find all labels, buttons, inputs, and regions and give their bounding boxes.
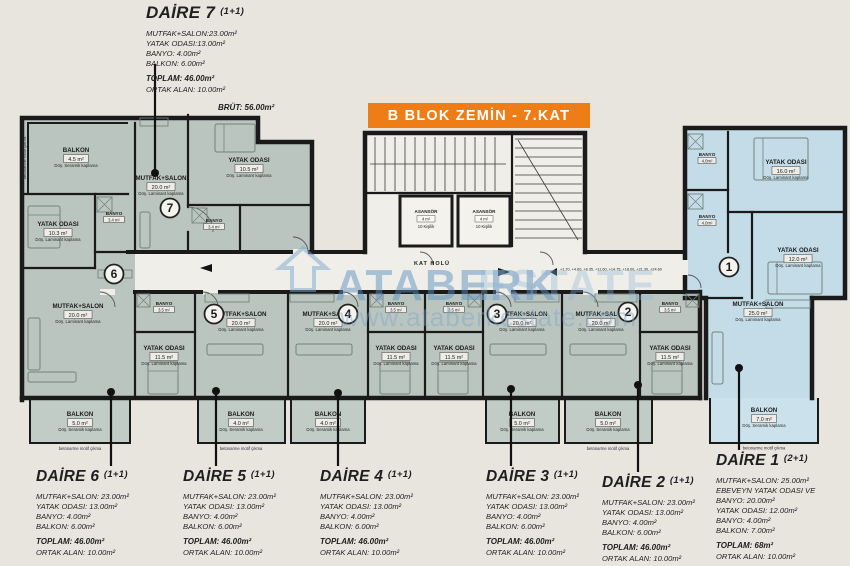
room-label-text: 3.4 m² [108, 217, 120, 222]
room-label-text: MUTFAK+SALON [732, 301, 784, 308]
unit-detail-line: BANYO: 4.00m² [36, 512, 129, 522]
elevator-label: ASANSÖR [473, 208, 497, 214]
unit-details: MUTFAK+SALON:23.00m²YATAK ODASI:13.00m²B… [146, 29, 274, 69]
room-label-text: 3.4 m² [208, 224, 220, 229]
unit-common-area: ORTAK ALAN: 10.00m² [602, 554, 695, 563]
unit-common-area: ORTAK ALAN: 10.00m² [716, 552, 815, 561]
unit-detail-line: BALKON: 6.00m² [486, 522, 579, 532]
unit-name: DAİRE 6 (1+1) [36, 468, 129, 486]
plan-title-banner: B BLOK ZEMİN - 7.KAT [368, 103, 590, 128]
room-label-text: Döş. Seramik kaplama [54, 163, 98, 168]
room-label-text: BALKON [751, 407, 778, 414]
unit-detail-line: YATAK ODASI:13.00m² [146, 39, 274, 49]
room-label-text: Döş. Laminant kaplama [775, 263, 821, 268]
unit-total: TOPLAM: 46.00m² [486, 537, 579, 546]
apartment-number: 6 [111, 267, 118, 281]
room-label-text: Döş. Laminant kaplama [138, 191, 184, 196]
watermark-url: www.ataberkestate.com [339, 302, 637, 332]
unit-label-daire7: DAİRE 7 (1+1) MUTFAK+SALON:23.00m²YATAK … [146, 3, 274, 112]
room-label-text: BANYO [699, 214, 716, 219]
unit-name: DAİRE 1 (2+1) [716, 452, 815, 470]
room-label-text: 16.0 m² [777, 169, 796, 175]
elevator-capacity: 10 Kişilik [418, 224, 435, 229]
room-label-text: BALKON [67, 411, 94, 418]
room-label-text: Döş. Seramik kaplama [500, 427, 544, 432]
unit-label-daire6: DAİRE 6 (1+1) MUTFAK+SALON: 23.00m²YATAK… [36, 468, 129, 557]
room-label-text: BALKON [228, 411, 255, 418]
room-label-text: YATAK ODASI [777, 247, 818, 254]
unit-name: DAİRE 4 (1+1) [320, 468, 413, 486]
unit-details: MUTFAK+SALON: 25.00m²EBEVEYN YATAK ODASI… [716, 476, 815, 536]
unit-detail-line: BALKON: 6.00m² [36, 522, 129, 532]
unit-detail-line: YATAK ODASI: 13.00m² [486, 502, 579, 512]
unit-name: DAİRE 3 (1+1) [486, 468, 579, 486]
room-label-text: Döş. Laminant kaplama [763, 175, 809, 180]
unit-detail-line: EBEVEYN YATAK ODASI VE [716, 486, 815, 496]
room-label-text: 20.0 m² [152, 185, 171, 191]
room-label-text: 20.0 m² [69, 313, 88, 319]
unit-label-daire3: DAİRE 3 (1+1) MUTFAK+SALON: 23.00m²YATAK… [486, 468, 579, 557]
room-label-text: 11.5 m² [387, 355, 405, 361]
room-label-text: 20.0 m² [232, 321, 251, 327]
room-label-text: YATAK ODASI [143, 345, 184, 352]
room-label-text: Döş. Laminant kaplama [735, 317, 781, 322]
unit-common-area: ORTAK ALAN: 10.00m² [320, 548, 413, 557]
room-label-text: Döş. Seramik kaplama [742, 423, 786, 428]
unit-detail-line: BALKON: 6.00m² [183, 522, 276, 532]
room-label-text: YATAK ODASI [649, 345, 690, 352]
room-label-text: 25.0 m² [749, 311, 768, 317]
elevator-label: ASANSÖR [415, 208, 439, 214]
unit-total: TOPLAM: 46.00m² [146, 74, 274, 83]
elevator-area: 4 m² [422, 217, 431, 222]
edge-note: betonarme motif çıkma [22, 136, 27, 179]
unit-detail-line: YATAK ODASI: 13.00m² [320, 502, 413, 512]
unit-detail-line: MUTFAK+SALON: 23.00m² [486, 492, 579, 502]
room-label-text: YATAK ODASI [433, 345, 474, 352]
room-label-text: 11.5 m² [155, 355, 173, 361]
unit-detail-line: MUTFAK+SALON: 23.00m² [320, 492, 413, 502]
room-label-text: YATAK ODASI [37, 221, 78, 228]
unit-detail-line: MUTFAK+SALON: 23.00m² [602, 498, 695, 508]
room-label-text: BANYO [662, 301, 679, 306]
room-label-text: Döş. Laminant kaplama [431, 361, 477, 366]
room-label-text: Döş. Seramik kaplama [219, 427, 263, 432]
unit-detail-line: BALKON: 6.00m² [320, 522, 413, 532]
unit-details: MUTFAK+SALON: 23.00m²YATAK ODASI: 13.00m… [602, 498, 695, 538]
room-label-text: BANYO [156, 301, 173, 306]
unit-detail-line: BANYO: 20.00m² [716, 496, 815, 506]
room-label-text: Döş. Seramik kaplama [306, 427, 350, 432]
room-label-text: 10.5 m² [240, 167, 259, 173]
unit-label-daire4: DAİRE 4 (1+1) MUTFAK+SALON: 23.00m²YATAK… [320, 468, 413, 557]
unit-detail-line: BALKON: 6.00m² [146, 59, 274, 69]
room-label-text: Döş. Laminant kaplama [35, 237, 81, 242]
room-label-text: Döş. Laminant kaplama [218, 327, 264, 332]
unit-detail-line: BANYO: 4.00m² [146, 49, 274, 59]
unit-detail-line: BANYO: 4.00m² [486, 512, 579, 522]
room-label-text: MUTFAK+SALON [135, 175, 187, 182]
unit-detail-line: YATAK ODASI: 12.00m² [716, 506, 815, 516]
unit-detail-line: MUTFAK+SALON:23.00m² [146, 29, 274, 39]
room-label-text: 12.0 m² [789, 257, 808, 263]
unit-label-daire2: DAİRE 2 (1+1) MUTFAK+SALON: 23.00m²YATAK… [602, 474, 695, 563]
room-label-text: Döş. Laminant kaplama [647, 361, 693, 366]
room-label-text: 4.0m² [702, 158, 713, 163]
room-label-text: MUTFAK+SALON [52, 303, 104, 310]
unit-common-area: ORTAK ALAN: 10.00m² [146, 85, 274, 94]
unit-detail-line: YATAK ODASI: 13.00m² [36, 502, 129, 512]
plan-title: B BLOK ZEMİN - 7.KAT [388, 108, 570, 124]
room-label-text: 10.3 m² [49, 231, 68, 237]
room-label-text: 11.5 m² [445, 355, 463, 361]
unit-details: MUTFAK+SALON: 23.00m²YATAK ODASI: 13.00m… [486, 492, 579, 532]
edge-note: betonarme motif çıkma [59, 446, 102, 451]
unit-total: TOPLAM: 46.00m² [602, 543, 695, 552]
edge-note: betonarme motif çıkma [220, 446, 263, 451]
unit-detail-line: YATAK ODASI: 13.00m² [602, 508, 695, 518]
room-label-text: BALKON [595, 411, 622, 418]
room-label-text: BANYO [106, 211, 123, 216]
room-label-text: 7.0 m² [756, 417, 772, 423]
room-label-text: Döş. Laminant kaplama [55, 319, 101, 324]
unit-name: DAİRE 5 (1+1) [183, 468, 276, 486]
room-label-text: BANYO [699, 152, 716, 157]
unit-detail-line: MUTFAK+SALON: 23.00m² [183, 492, 276, 502]
elevator-capacity: 10 Kişilik [476, 224, 493, 229]
unit-detail-line: BALKON: 7.00m² [716, 526, 815, 536]
room-label-text: 20.0 m² [319, 321, 338, 327]
unit-detail-line: BANYO: 4.00m² [602, 518, 695, 528]
room-label-text: 5.0 m² [72, 421, 88, 427]
room-label-text: YATAK ODASI [228, 157, 269, 164]
unit-total: TOPLAM: 46.00m² [36, 537, 129, 546]
room-label-text: 4.5 m² [68, 157, 84, 163]
edge-note: betonarme motif çıkma [587, 446, 630, 451]
room-label-text: BANYO [206, 218, 223, 223]
floorplan-page: { "banner": { "title": "B BLOK ZEMİN - 7… [0, 0, 850, 566]
apartment-number: 1 [726, 260, 733, 274]
room-label-text: Döş. Laminant kaplama [373, 361, 419, 366]
unit-detail-line: BANYO: 4.00m² [716, 516, 815, 526]
unit-detail-line: YATAK ODASI: 13.00m² [183, 502, 276, 512]
room-label-text: YATAK ODASI [375, 345, 416, 352]
unit-detail-line: BANYO: 4.00m² [320, 512, 413, 522]
room-label-text: 4.0 m² [320, 421, 336, 427]
unit-total: TOPLAM: 46.00m² [320, 537, 413, 546]
unit-label-daire1: DAİRE 1 (2+1) MUTFAK+SALON: 25.00m²EBEVE… [716, 452, 815, 561]
room-label-text: BALKON [63, 147, 90, 154]
unit-common-area: ORTAK ALAN: 10.00m² [486, 548, 579, 557]
unit-detail-line: MUTFAK+SALON: 23.00m² [36, 492, 129, 502]
unit-details: MUTFAK+SALON: 23.00m²YATAK ODASI: 13.00m… [320, 492, 413, 532]
room-label-text: BALKON [509, 411, 536, 418]
unit-common-area: ORTAK ALAN: 10.00m² [183, 548, 276, 557]
room-label-text: 3.5 m² [664, 307, 676, 312]
unit-name: DAİRE 7 (1+1) [146, 3, 274, 23]
room-label-text: 4.0m² [702, 220, 713, 225]
room-label-text: Döş. Laminant kaplama [226, 173, 272, 178]
unit-detail-line: MUTFAK+SALON: 25.00m² [716, 476, 815, 486]
unit-name: DAİRE 2 (1+1) [602, 474, 695, 492]
room-label-text: 4.0 m² [233, 421, 249, 427]
unit-label-daire5: DAİRE 5 (1+1) MUTFAK+SALON: 23.00m²YATAK… [183, 468, 276, 557]
apartment-number: 7 [167, 201, 174, 215]
room-label-text: Döş. Seramik kaplama [58, 427, 102, 432]
elevator-area: 4 m² [480, 217, 489, 222]
unit-detail-line: BANYO: 4.00m² [183, 512, 276, 522]
room-label-text: 5.0 m² [600, 421, 616, 427]
unit-details: MUTFAK+SALON: 23.00m²YATAK ODASI: 13.00m… [36, 492, 129, 532]
room-label-text: 5.0 m² [514, 421, 530, 427]
unit-common-area: ORTAK ALAN: 10.00m² [36, 548, 129, 557]
room-label-text: 3.5 m² [158, 307, 170, 312]
unit-detail-line: BALKON: 6.00m² [602, 528, 695, 538]
unit-total: TOPLAM: 68m² [716, 541, 815, 550]
unit-total: TOPLAM: 46.00m² [183, 537, 276, 546]
room-label-text: 11.5 m² [661, 355, 679, 361]
apartment-number: 5 [211, 307, 218, 321]
edge-note: betonarme motif çıkma [743, 446, 786, 451]
room-label-text: Döş. Seramik kaplama [586, 427, 630, 432]
room-label-text: Döş. Laminant kaplama [141, 361, 187, 366]
unit-details: MUTFAK+SALON: 23.00m²YATAK ODASI: 13.00m… [183, 492, 276, 532]
unit-gross-area: BRÜT: 56.00m² [146, 103, 274, 112]
room-label-text: YATAK ODASI [765, 159, 806, 166]
